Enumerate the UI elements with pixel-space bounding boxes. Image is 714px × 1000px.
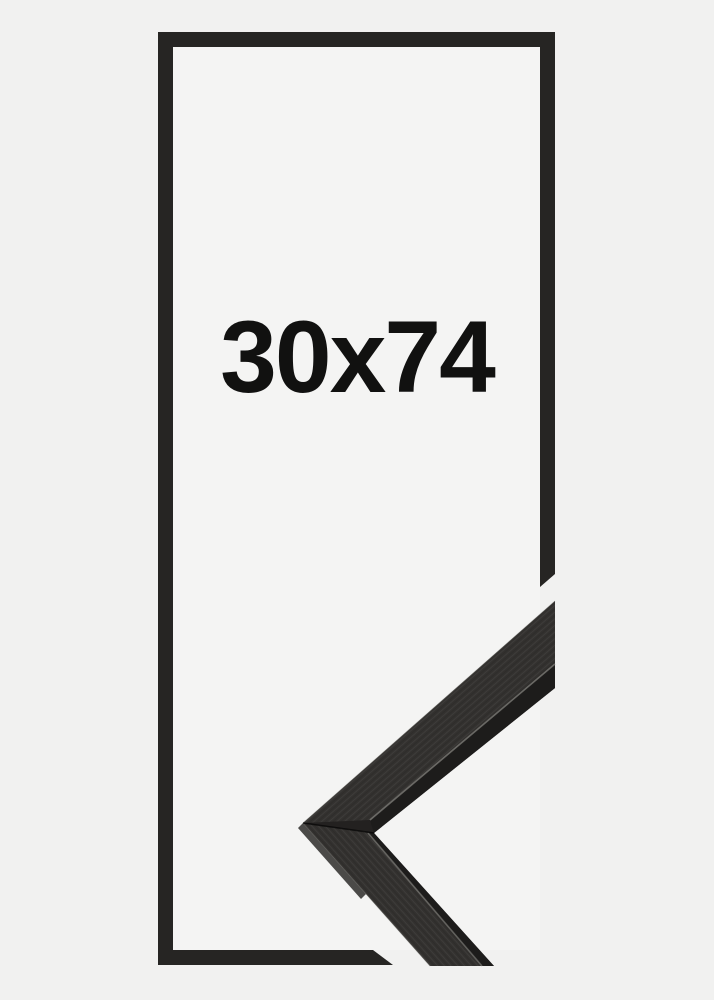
size-label: 30x74 [220, 300, 496, 414]
frame-preview-svg: 30x74 [0, 0, 714, 1000]
frame-product-image: 30x74 [0, 0, 714, 1000]
